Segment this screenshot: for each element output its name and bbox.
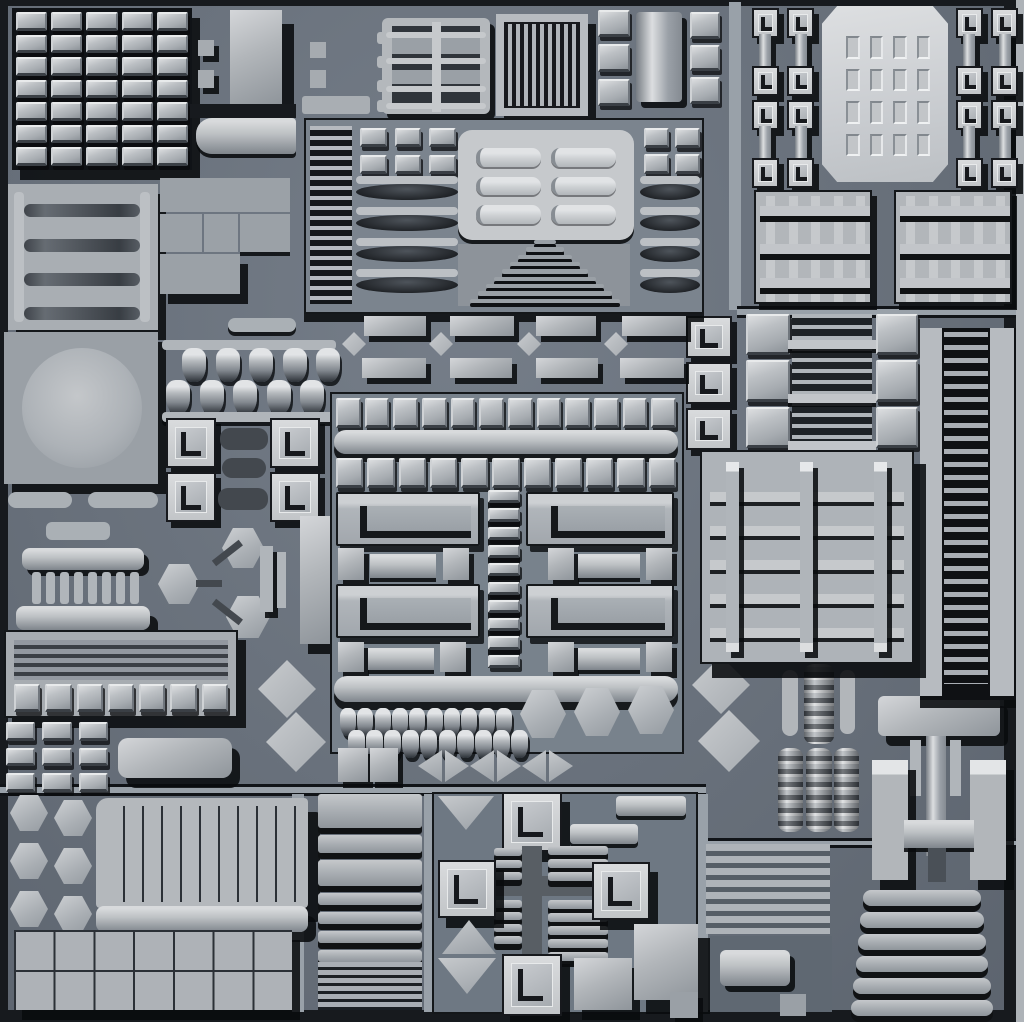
kc-cell [108,684,134,712]
tile-grid [14,930,292,1010]
slat [494,900,522,908]
comb-tooth [116,572,125,604]
low-bar [578,554,640,578]
kc-cell [429,128,456,147]
pipe-grid [360,128,456,174]
slat [494,924,522,932]
l-button-face [447,869,487,909]
l-button [686,362,732,404]
kc-cell [16,12,47,31]
kc-cell [157,102,188,121]
slat [318,860,422,886]
bolt [166,380,190,414]
small-square [310,70,326,88]
l-button-face [793,106,808,124]
pill-block [118,738,232,778]
clamp-button [787,158,814,188]
kc-cell [644,128,669,148]
shelf-bar [356,176,458,184]
kc-cell [139,684,165,712]
l-mark [965,167,976,181]
l-button-face [601,871,641,911]
zig-step [494,277,596,281]
l-mark [285,486,305,510]
pillc-cell [551,205,616,224]
hex-bolt [10,891,48,927]
bolt [457,730,474,758]
hole-cell [870,101,884,124]
square-column [876,314,918,448]
kc-cell [644,154,669,174]
slat-stack-dense [318,962,422,1010]
kc-cell [122,80,153,99]
dome [22,348,142,468]
clamp-strap [759,126,771,162]
kc-cell [79,773,108,792]
shelf-disc [356,184,458,200]
stepped-panel-cell [160,214,202,252]
manifold-pin [910,740,921,796]
l-button-face [962,72,977,90]
l-button [502,954,562,1016]
diamond [266,712,326,772]
manifold-pin [950,740,961,796]
kc-cell [537,398,562,428]
diamond-large [692,656,750,714]
l-button-face [758,72,773,90]
manifold-bar [878,696,1000,736]
shutter-bar [900,244,1010,254]
l-button [270,472,320,522]
kc-cell [508,398,533,428]
zig-step [534,240,556,244]
l-button-face [758,164,773,182]
l-mark [700,329,718,348]
stepped-panel-foot [160,254,240,294]
small-square [198,70,214,88]
l-button [438,860,496,918]
zig-step [510,262,580,266]
kc-cell [42,722,71,741]
shelf-bar [640,207,700,215]
screen-pills [476,148,616,224]
kc-cell [488,527,520,540]
kc-cell [555,458,582,488]
kc-cell [649,458,676,488]
grooved-plate [336,492,480,546]
comb-tooth [60,572,69,604]
manifold-tower [872,760,908,880]
l-button-face [695,371,723,395]
greeble-texture-canvas [0,0,1024,1022]
scaffold-knob [377,56,386,68]
pill-block [720,950,790,986]
kc-cell [746,314,790,355]
key-grid-small [6,722,108,792]
bolt [283,348,307,382]
small-square [198,40,214,56]
key-block [443,548,469,580]
l-mark [796,167,807,181]
pin-pill [840,670,855,734]
bolt [420,730,437,758]
shutter-panel [894,190,1012,304]
kc-cell [79,722,108,741]
bolt [200,380,224,414]
key-block [370,748,398,782]
shutter-bar [760,278,870,288]
band-diamond [342,332,366,356]
hole-cell [893,36,907,59]
louver-slat [24,239,140,252]
l-button [270,418,320,468]
kc-cell [360,128,387,147]
key-block [548,548,574,580]
slat [856,956,988,972]
bolt [233,380,257,414]
bolt-row [166,380,324,414]
clamp-strap [759,34,771,70]
clamp-button [956,158,983,188]
l-button-face [997,14,1012,32]
l-button-face [279,427,311,459]
kc-cell [170,684,196,712]
louver-slat [24,307,140,320]
kc-cell [157,80,188,99]
manifold-crossbar [904,820,974,848]
kc-cell [365,398,390,428]
slat [318,835,422,853]
bolt-row [182,348,340,382]
l-button-face [695,325,723,349]
kc-cell [42,748,71,767]
l-button-face [997,72,1012,90]
connector-clamp [956,8,1018,96]
bolt [300,380,324,414]
kc-cell [122,102,153,121]
clamp-strap [795,34,807,70]
l-mark [761,167,772,181]
l-mark [761,109,772,123]
kc-cell [157,125,188,144]
hole-cell [917,134,931,157]
comb-heatsink [16,548,150,630]
l-button [686,316,732,358]
slat [858,934,986,950]
pill-bar [570,824,638,844]
l-mark [796,109,807,123]
key-block [338,748,368,782]
kc-cell [79,748,108,767]
kc-cell [461,458,488,488]
pipe-horizontal [334,430,678,454]
comb-base [16,606,150,630]
bolt [182,348,206,382]
wide-pill [96,906,308,932]
band-bar [536,358,598,378]
connector-clamp [752,8,814,96]
disc-stack [778,748,803,832]
slat [548,939,608,948]
zig-step [502,269,588,273]
clamp-strap [999,34,1011,70]
kc-cell [157,35,188,54]
kc-cell [430,458,457,488]
shelf-disc [356,246,458,262]
pill-bar [228,318,296,332]
shelf-bar [356,269,458,277]
kc-cell [598,79,630,106]
louver-slat [24,273,140,286]
vent-bar [788,340,876,349]
louver-panel [8,184,158,330]
slat [318,912,422,924]
kc-cell [86,125,117,144]
square-column [746,314,790,448]
l-button-face [962,106,977,124]
kc-cell [594,398,619,428]
kc-cell [367,458,394,488]
frame-top [0,0,1024,6]
hole-cell [893,134,907,157]
l-mark [1000,109,1011,123]
hole-cell [870,134,884,157]
l-button [592,862,650,920]
hex-bolt [10,843,48,879]
hole-cell [846,36,860,59]
clamp-button [956,66,983,96]
l-mark [1000,75,1011,89]
bracket-bar [277,552,286,608]
kc-cell [524,458,551,488]
kc-cell [675,128,700,148]
louver-vent [792,314,872,448]
hole-cell [917,69,931,92]
kc-cell [86,35,117,54]
dark-pill [222,458,266,478]
shutter-bar [900,206,1010,216]
plate-groove [360,506,471,538]
l-button-face [695,417,723,441]
l-button-face [793,164,808,182]
ladder-rail [990,328,1014,696]
pill-bar [8,492,72,508]
kc-cell [51,147,82,166]
bolt [267,380,291,414]
square-column [690,12,720,104]
small-square [670,992,698,1018]
key-block [646,548,672,580]
kc-cell [51,57,82,76]
kc-cell [623,398,648,428]
kc-cell [157,147,188,166]
kc-cell [746,360,790,401]
kc-cell [876,407,918,448]
scaffold-knob [377,100,386,112]
kc-cell [51,35,82,54]
hex-bolt [54,896,92,932]
l-button-face [962,164,977,182]
pill-bar [302,96,370,114]
radiator-post [726,462,739,652]
l-mark [700,421,718,440]
shelf-bar [640,269,700,277]
bracket-bar [260,546,273,612]
bolt [511,730,528,758]
shelf-disc [640,277,700,293]
l-mark [761,75,772,89]
radiator-post [874,462,887,652]
zig-step [526,247,564,251]
stepped-panel-top [160,178,290,212]
kc-cell [122,147,153,166]
bolt [402,730,419,758]
kc-cell [488,618,520,631]
comb-tooth [74,572,83,604]
hole-cell [846,134,860,157]
l-button [166,418,216,468]
kc-cell [651,398,676,428]
dark-pill [218,488,268,510]
kc-cell [488,545,520,558]
disc-stack [806,748,832,832]
l-button-face [962,14,977,32]
hex-node [158,564,200,604]
l-button-face [997,164,1012,182]
flat-square [574,958,632,1010]
hole-cell [917,101,931,124]
l-mark [285,432,305,456]
disc-stack [834,748,859,832]
hole-cell [917,36,931,59]
clamp-button [787,66,814,96]
l-mark [1000,17,1011,31]
wire [196,580,222,587]
l-mark [1000,167,1011,181]
square-column [598,10,630,106]
shelf-disc [640,215,700,231]
clamp-button [752,158,779,188]
comb-tooth [130,572,139,604]
l-mark [796,17,807,31]
l-button-face [511,963,553,1007]
slat [548,926,608,935]
groove-keys [14,684,228,712]
kc-cell [488,655,520,668]
kc-cell [77,684,103,712]
kc-cell [86,80,117,99]
band-bar [364,316,426,336]
slat [494,936,522,944]
kc-cell [488,490,520,503]
dark-slot [190,104,296,118]
l-mark [608,877,632,906]
kc-cell [617,458,644,488]
l-mark [965,17,976,31]
pipe-stub [196,118,296,154]
kc-cell [51,125,82,144]
l-mark [181,432,201,456]
slat [494,860,522,868]
slat [318,893,422,905]
bolt [249,348,273,382]
kc-cell [86,102,117,121]
l-button-face [175,481,207,513]
slat [494,872,522,880]
kc-cell [598,44,630,71]
kc-cell [51,102,82,121]
scaffold-knob [377,32,386,44]
kc-cell [393,398,418,428]
vent-bar [788,441,876,450]
kc-cell [675,154,700,174]
pipe-grid [644,128,700,174]
kc-cell [6,748,35,767]
ladder-rail [920,328,942,696]
slat [494,848,522,856]
band-bar [362,358,426,378]
slat [853,978,991,994]
kc-cell [16,147,47,166]
grooved-plate [526,492,674,546]
low-bar [578,648,640,670]
groove-stripes [14,640,228,680]
octagon-holes [846,36,930,156]
kc-cell [360,155,387,174]
shutter-bar [900,278,1010,288]
l-button [502,792,562,852]
kc-cell [876,360,918,401]
frame-left [0,0,8,1022]
kc-cell [45,684,71,712]
connector-clamp [752,100,814,188]
grooved-plate [526,584,674,638]
cross-vertical [522,846,542,958]
radiator-post [800,462,813,652]
diamond-large [698,710,760,772]
l-mark [518,807,543,838]
kc-cell [16,57,47,76]
kc-cell [399,458,426,488]
kc-cell [488,600,520,613]
slat [851,1000,993,1016]
kc-cell [16,102,47,121]
l-button-face [758,106,773,124]
kc-cell [51,80,82,99]
l-mark [965,75,976,89]
kc-cell [122,35,153,54]
manifold-tower [970,760,1006,880]
band-bar [622,316,686,336]
bolt [316,348,340,382]
zig-step [470,299,620,303]
plate-groove [551,598,665,630]
shutter-bar [760,244,870,254]
stair-ziggurat [470,240,620,306]
kc-cell [690,12,720,39]
slat [318,794,422,828]
kc-cell [395,128,422,147]
slat [863,890,981,906]
rib-lines [106,806,300,902]
l-button [166,472,216,522]
l-button-face [997,106,1012,124]
shelf-disc [640,246,700,262]
striped-vent [706,844,830,934]
kc-cell [16,35,47,54]
key-block [646,642,672,672]
shelf-bar [640,238,700,246]
